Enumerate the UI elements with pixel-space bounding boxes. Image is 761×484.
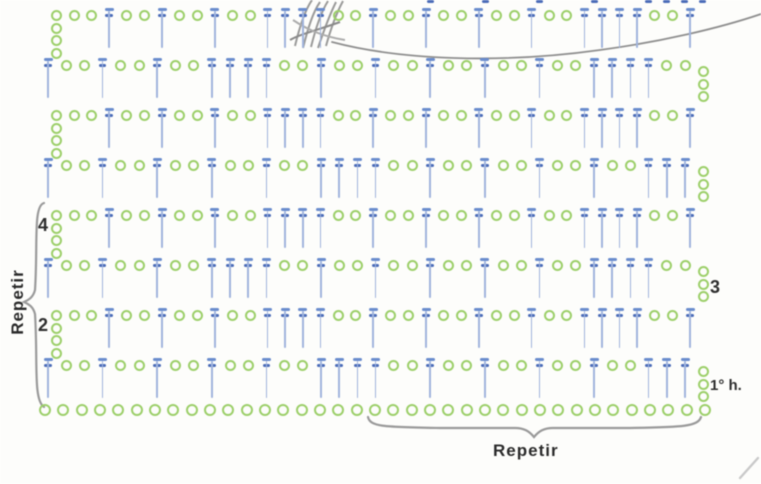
turning-chain-icon <box>51 148 62 159</box>
dc-stitch-icon <box>156 61 158 98</box>
dc-stitch-icon <box>636 311 638 348</box>
foundation-chain-icon <box>461 404 473 416</box>
dc-stitch-icon <box>284 311 286 348</box>
chain-stitch-icon <box>607 160 618 171</box>
dc-stitch-icon <box>425 211 427 248</box>
chain-stitch-icon <box>121 310 132 321</box>
foundation-chain-icon <box>369 404 381 416</box>
chain-stitch-icon <box>407 260 418 271</box>
chain-stitch-icon <box>115 360 126 371</box>
turning-chain-icon <box>698 379 709 390</box>
dc-stitch-icon <box>601 211 603 248</box>
foundation-chain-icon <box>57 404 69 416</box>
chain-stitch-icon <box>170 160 181 171</box>
chain-stitch-icon <box>649 310 660 321</box>
turning-chain-icon <box>51 248 62 259</box>
dc-stitch-icon <box>47 161 49 198</box>
chain-stitch-icon <box>544 310 555 321</box>
chain-stitch-icon <box>245 10 256 21</box>
chain-stitch-icon <box>403 310 414 321</box>
turning-chain-icon <box>51 223 62 234</box>
dc-stitch-icon <box>214 111 216 148</box>
foundation-chain-icon <box>259 404 271 416</box>
chain-stitch-icon <box>245 110 256 121</box>
dc-stitch-icon <box>156 261 158 298</box>
chain-stitch-icon <box>170 360 181 371</box>
chain-stitch-icon <box>192 10 203 21</box>
dc-stitch-icon <box>429 161 431 198</box>
foundation-chain-icon <box>681 404 693 416</box>
chain-stitch-icon <box>385 110 396 121</box>
chain-stitch-icon <box>649 10 660 21</box>
chain-stitch-icon <box>509 10 520 21</box>
chain-stitch-icon <box>388 360 399 371</box>
chain-stitch-icon <box>607 360 618 371</box>
chain-stitch-icon <box>516 160 527 171</box>
foundation-chain-icon <box>241 404 253 416</box>
turning-chain-icon <box>698 179 709 190</box>
dc-stitch-icon <box>211 261 213 298</box>
chain-stitch-icon <box>192 110 203 121</box>
chain-stitch-icon <box>352 260 363 271</box>
chain-stitch-icon <box>243 160 254 171</box>
chain-stitch-icon <box>461 60 472 71</box>
cropped-dc-tip-icon <box>681 0 688 3</box>
dc-stitch-icon <box>284 211 286 248</box>
turning-chain-icon <box>51 10 62 21</box>
chain-stitch-icon <box>115 60 126 71</box>
dc-stitch-icon <box>689 11 691 48</box>
chain-stitch-icon <box>443 160 454 171</box>
foundation-chain-icon <box>589 404 601 416</box>
dc-stitch-icon <box>156 361 158 398</box>
chain-stitch-icon <box>227 310 238 321</box>
turning-chain-icon <box>51 23 62 34</box>
chain-stitch-icon <box>115 260 126 271</box>
chain-stitch-icon <box>79 160 90 171</box>
chain-stitch-icon <box>134 260 145 271</box>
dc-stitch-icon <box>684 161 686 198</box>
chain-stitch-icon <box>245 310 256 321</box>
chain-stitch-icon <box>388 260 399 271</box>
chain-stitch-icon <box>134 60 145 71</box>
dc-stitch-icon <box>636 111 638 148</box>
chain-stitch-icon <box>134 360 145 371</box>
chain-stitch-icon <box>438 310 449 321</box>
dc-stitch-icon <box>689 311 691 348</box>
foundation-chain-icon <box>222 404 234 416</box>
chain-stitch-icon <box>334 60 345 71</box>
dc-stitch-icon <box>284 111 286 148</box>
chain-stitch-icon <box>279 360 290 371</box>
chain-stitch-icon <box>552 160 563 171</box>
chain-stitch-icon <box>279 60 290 71</box>
chain-stitch-icon <box>174 110 185 121</box>
chain-stitch-icon <box>561 310 572 321</box>
chain-stitch-icon <box>61 160 72 171</box>
dc-stitch-icon <box>601 311 603 348</box>
turning-chain-icon <box>51 235 62 246</box>
chain-stitch-icon <box>79 260 90 271</box>
chain-stitch-icon <box>649 210 660 221</box>
chain-stitch-icon <box>245 210 256 221</box>
chain-stitch-icon <box>192 210 203 221</box>
chain-stitch-icon <box>86 10 97 21</box>
chain-stitch-icon <box>498 60 509 71</box>
chain-stitch-icon <box>350 110 361 121</box>
chain-stitch-icon <box>443 260 454 271</box>
chain-stitch-icon <box>188 360 199 371</box>
foundation-chain-icon <box>332 404 344 416</box>
dc-stitch-icon <box>666 361 668 398</box>
chain-stitch-icon <box>403 10 414 21</box>
dc-stitch-icon <box>484 61 486 98</box>
chain-stitch-icon <box>350 210 361 221</box>
dc-stitch-icon <box>229 261 231 298</box>
chain-stitch-icon <box>134 160 145 171</box>
turning-chain-icon <box>51 310 62 321</box>
chain-stitch-icon <box>561 210 572 221</box>
chain-stitch-icon <box>544 10 555 21</box>
turning-chain-icon <box>698 79 709 90</box>
chain-stitch-icon <box>516 260 527 271</box>
dc-stitch-icon <box>247 261 249 298</box>
chain-stitch-icon <box>139 10 150 21</box>
chain-stitch-icon <box>667 310 678 321</box>
chain-stitch-icon <box>350 310 361 321</box>
chain-stitch-icon <box>438 10 449 21</box>
foundation-chain-icon <box>662 404 674 416</box>
dc-stitch-icon <box>593 261 595 298</box>
chain-stitch-icon <box>174 210 185 221</box>
row-number-label: 2 <box>38 316 48 334</box>
dc-stitch-icon <box>302 111 304 148</box>
chain-stitch-icon <box>407 60 418 71</box>
dc-stitch-icon <box>229 61 231 98</box>
foundation-chain-icon <box>479 404 491 416</box>
chain-stitch-icon <box>438 210 449 221</box>
dc-stitch-icon <box>320 161 322 198</box>
dc-stitch-icon <box>478 111 480 148</box>
chain-stitch-icon <box>69 310 80 321</box>
turning-chain-icon <box>51 123 62 134</box>
turning-chain-icon <box>698 266 709 277</box>
dc-stitch-icon <box>284 11 286 48</box>
dc-stitch-icon <box>161 211 163 248</box>
dc-stitch-icon <box>601 111 603 148</box>
chain-stitch-icon <box>403 210 414 221</box>
dc-stitch-icon <box>372 11 374 48</box>
turning-chain-icon <box>51 335 62 346</box>
chain-stitch-icon <box>544 210 555 221</box>
chain-stitch-icon <box>225 360 236 371</box>
crochet-chart-canvas: 1° h.234 Repetir Repetir <box>0 0 761 484</box>
turning-chain-icon <box>698 366 709 377</box>
chain-stitch-icon <box>552 360 563 371</box>
chain-stitch-icon <box>680 60 691 71</box>
chain-stitch-icon <box>570 160 581 171</box>
turning-chain-icon <box>51 348 62 359</box>
foundation-chain-icon <box>204 404 216 416</box>
chain-stitch-icon <box>121 210 132 221</box>
dc-stitch-icon <box>478 11 480 48</box>
cropped-dc-tip-icon <box>699 0 706 3</box>
chain-stitch-icon <box>61 60 72 71</box>
chain-stitch-icon <box>170 60 181 71</box>
dc-stitch-icon <box>484 161 486 198</box>
chain-stitch-icon <box>170 260 181 271</box>
dc-stitch-icon <box>593 361 595 398</box>
dc-stitch-icon <box>247 61 249 98</box>
chain-stitch-icon <box>443 360 454 371</box>
chain-stitch-icon <box>570 60 581 71</box>
chain-stitch-icon <box>139 310 150 321</box>
foundation-chain-icon <box>314 404 326 416</box>
hand-drawn-curve <box>332 14 761 58</box>
chain-stitch-icon <box>570 360 581 371</box>
chain-stitch-icon <box>227 10 238 21</box>
chain-stitch-icon <box>350 10 361 21</box>
chain-stitch-icon <box>69 210 80 221</box>
chain-stitch-icon <box>498 160 509 171</box>
cropped-dc-tip-icon <box>591 0 598 3</box>
chain-stitch-icon <box>552 60 563 71</box>
dc-stitch-icon <box>478 211 480 248</box>
foundation-chain-icon <box>387 404 399 416</box>
chain-stitch-icon <box>498 260 509 271</box>
cropped-dc-tip-icon <box>645 0 652 3</box>
chain-stitch-icon <box>297 360 308 371</box>
turning-chain-icon <box>698 166 709 177</box>
dc-stitch-icon <box>211 161 213 198</box>
bottom-repeat-brace <box>368 417 701 437</box>
chain-stitch-icon <box>121 110 132 121</box>
dc-stitch-icon <box>108 211 110 248</box>
dc-stitch-icon <box>684 361 686 398</box>
dc-stitch-icon <box>214 11 216 48</box>
foundation-chain-icon <box>424 404 436 416</box>
dc-stitch-icon <box>211 61 213 98</box>
turning-chain-icon <box>698 391 709 402</box>
chain-stitch-icon <box>498 360 509 371</box>
foundation-chain-icon <box>534 404 546 416</box>
chain-stitch-icon <box>491 110 502 121</box>
dc-stitch-icon <box>161 11 163 48</box>
chain-stitch-icon <box>461 160 472 171</box>
chain-stitch-icon <box>661 260 672 271</box>
left-repeat-label: Repetir <box>8 252 28 352</box>
foundation-chain-icon <box>571 404 583 416</box>
dc-stitch-icon <box>338 361 340 398</box>
chain-stitch-icon <box>297 60 308 71</box>
chain-stitch-icon <box>333 110 344 121</box>
dc-stitch-icon <box>636 211 638 248</box>
chain-stitch-icon <box>509 310 520 321</box>
turning-chain-icon <box>51 35 62 46</box>
dc-stitch-icon <box>108 311 110 348</box>
dc-stitch-icon <box>108 111 110 148</box>
chain-stitch-icon <box>174 10 185 21</box>
dc-stitch-icon <box>320 261 322 298</box>
chain-stitch-icon <box>225 160 236 171</box>
chain-stitch-icon <box>192 310 203 321</box>
dc-stitch-icon <box>636 11 638 48</box>
dc-stitch-icon <box>47 361 49 398</box>
chain-stitch-icon <box>297 160 308 171</box>
chain-stitch-icon <box>61 360 72 371</box>
dc-stitch-icon <box>425 311 427 348</box>
chain-stitch-icon <box>385 210 396 221</box>
chain-stitch-icon <box>561 10 572 21</box>
dc-stitch-icon <box>338 161 340 198</box>
dc-stitch-icon <box>302 211 304 248</box>
foundation-chain-icon <box>112 404 124 416</box>
dc-stitch-icon <box>47 261 49 298</box>
dc-stitch-icon <box>211 361 213 398</box>
turning-chain-icon <box>698 66 709 77</box>
chain-stitch-icon <box>552 260 563 271</box>
turning-chain-icon <box>698 279 709 290</box>
chain-stitch-icon <box>279 160 290 171</box>
foundation-chain-icon <box>699 404 711 416</box>
chain-stitch-icon <box>388 60 399 71</box>
chain-stitch-icon <box>403 110 414 121</box>
foundation-chain-icon <box>626 404 638 416</box>
cropped-dc-tip-icon <box>482 0 489 3</box>
dc-stitch-icon <box>689 211 691 248</box>
chain-stitch-icon <box>188 160 199 171</box>
chain-stitch-icon <box>188 260 199 271</box>
chain-stitch-icon <box>461 360 472 371</box>
dc-stitch-icon <box>666 161 668 198</box>
row-number-label: 3 <box>710 278 720 296</box>
dc-stitch-icon <box>320 61 322 98</box>
dc-stitch-icon <box>214 211 216 248</box>
foundation-chain-icon <box>167 404 179 416</box>
chain-stitch-icon <box>121 10 132 21</box>
cropped-dc-tip-icon <box>536 0 543 3</box>
turning-chain-icon <box>51 135 62 146</box>
turning-chain-icon <box>51 323 62 334</box>
row-number-label: 4 <box>38 216 48 234</box>
dc-stitch-icon <box>372 211 374 248</box>
foundation-chain-icon <box>186 404 198 416</box>
chain-stitch-icon <box>385 310 396 321</box>
chain-stitch-icon <box>86 310 97 321</box>
foundation-chain-icon <box>94 404 106 416</box>
dc-stitch-icon <box>372 111 374 148</box>
chain-stitch-icon <box>79 360 90 371</box>
turning-chain-icon <box>51 210 62 221</box>
cropped-dc-tip-icon <box>427 0 434 3</box>
dc-stitch-icon <box>611 61 613 98</box>
cropped-dc-tip-icon <box>663 0 670 3</box>
chain-stitch-icon <box>61 260 72 271</box>
chain-stitch-icon <box>385 10 396 21</box>
chain-stitch-icon <box>625 160 636 171</box>
chain-stitch-icon <box>69 110 80 121</box>
chain-stitch-icon <box>667 10 678 21</box>
chain-stitch-icon <box>407 160 418 171</box>
chain-stitch-icon <box>243 360 254 371</box>
dc-stitch-icon <box>156 161 158 198</box>
dc-stitch-icon <box>484 261 486 298</box>
chain-stitch-icon <box>625 360 636 371</box>
chain-stitch-icon <box>227 210 238 221</box>
dc-stitch-icon <box>425 11 427 48</box>
dc-stitch-icon <box>601 11 603 48</box>
foundation-chain-icon <box>39 404 51 416</box>
chain-stitch-icon <box>509 210 520 221</box>
foundation-chain-icon <box>149 404 161 416</box>
chain-stitch-icon <box>667 210 678 221</box>
chain-stitch-icon <box>456 10 467 21</box>
chain-stitch-icon <box>516 360 527 371</box>
chain-stitch-icon <box>491 310 502 321</box>
chain-stitch-icon <box>279 260 290 271</box>
chain-stitch-icon <box>297 260 308 271</box>
foundation-chain-icon <box>406 404 418 416</box>
turning-chain-icon <box>51 48 62 59</box>
foundation-chain-icon <box>351 404 363 416</box>
chain-stitch-icon <box>680 260 691 271</box>
dc-stitch-icon <box>484 361 486 398</box>
chain-stitch-icon <box>661 60 672 71</box>
turning-chain-icon <box>698 191 709 202</box>
dc-stitch-icon <box>47 61 49 98</box>
dc-stitch-icon <box>320 361 322 398</box>
chain-stitch-icon <box>174 310 185 321</box>
dc-stitch-icon <box>302 311 304 348</box>
dc-stitch-icon <box>689 111 691 148</box>
chain-stitch-icon <box>407 360 418 371</box>
dc-stitch-icon <box>214 311 216 348</box>
chain-stitch-icon <box>461 260 472 271</box>
chain-stitch-icon <box>456 110 467 121</box>
foundation-chain-icon <box>442 404 454 416</box>
chain-stitch-icon <box>491 10 502 21</box>
foundation-chain-icon <box>516 404 528 416</box>
turning-chain-icon <box>698 91 709 102</box>
bottom-repeat-label: Repetir <box>493 441 559 461</box>
foundation-chain-icon <box>644 404 656 416</box>
chain-stitch-icon <box>334 260 345 271</box>
chain-stitch-icon <box>570 260 581 271</box>
turning-chain-icon <box>51 110 62 121</box>
foundation-chain-icon <box>76 404 88 416</box>
corner-mark <box>740 458 758 478</box>
foundation-chain-icon <box>497 404 509 416</box>
chain-stitch-icon <box>86 210 97 221</box>
chain-stitch-icon <box>115 160 126 171</box>
chain-stitch-icon <box>79 60 90 71</box>
chain-stitch-icon <box>69 10 80 21</box>
chain-stitch-icon <box>139 110 150 121</box>
dc-stitch-icon <box>593 61 595 98</box>
chain-stitch-icon <box>544 110 555 121</box>
dc-stitch-icon <box>429 61 431 98</box>
chain-stitch-icon <box>438 110 449 121</box>
dc-stitch-icon <box>478 311 480 348</box>
dc-stitch-icon <box>372 311 374 348</box>
row-number-label: 1° h. <box>710 378 742 393</box>
dc-stitch-icon <box>425 111 427 148</box>
chain-stitch-icon <box>456 210 467 221</box>
chain-stitch-icon <box>139 210 150 221</box>
chain-stitch-icon <box>649 110 660 121</box>
chain-stitch-icon <box>509 110 520 121</box>
turning-chain-icon <box>698 291 709 302</box>
